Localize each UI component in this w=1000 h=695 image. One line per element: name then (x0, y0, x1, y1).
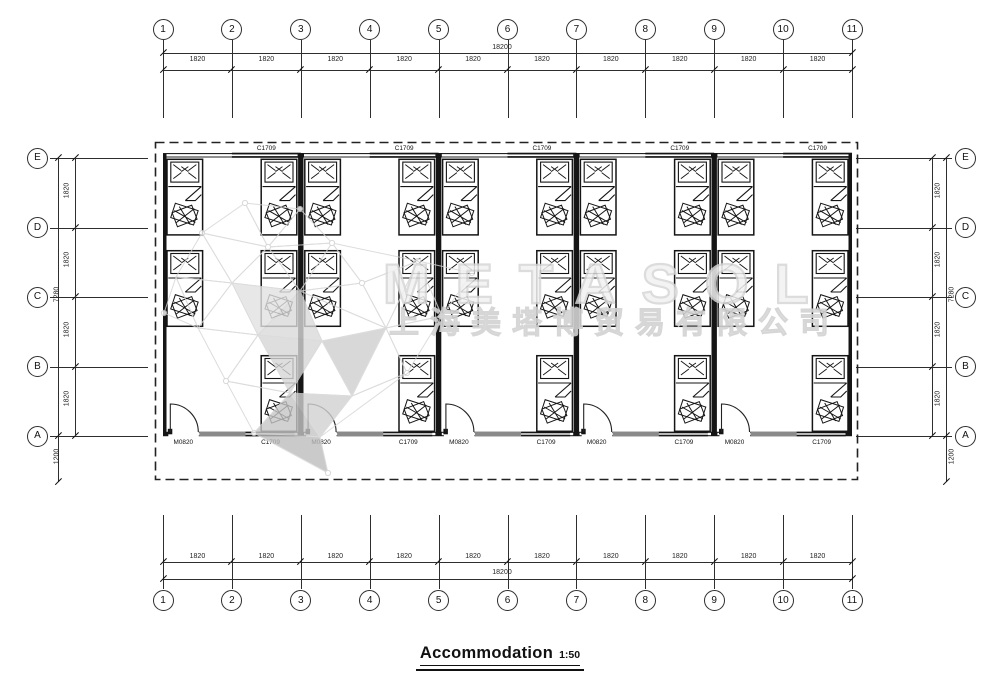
bed (399, 159, 435, 235)
bed (718, 251, 754, 327)
bottom-window-label: C1709 (812, 439, 831, 446)
partition-wall (298, 155, 303, 436)
bed (675, 356, 711, 432)
top-window-label: C1709 (395, 145, 414, 152)
top-window-label: C1709 (257, 145, 276, 152)
bed (261, 356, 297, 432)
bed (305, 159, 341, 235)
bed (399, 251, 435, 327)
bed (675, 251, 711, 327)
bottom-window-label: C1709 (674, 439, 693, 446)
bed (537, 356, 573, 432)
door-swing (584, 404, 612, 432)
partition-wall (574, 155, 579, 436)
partition-wall (712, 155, 717, 436)
drawing-scale: 1:50 (559, 649, 580, 661)
bed (812, 251, 848, 327)
door-swing (308, 404, 336, 432)
bottom-window-label: C1709 (261, 439, 280, 446)
door-label: M0820 (311, 439, 331, 446)
bottom-window-label: C1709 (399, 439, 418, 446)
door-label: M0820 (725, 439, 745, 446)
title-block: Accommodation1:50 (400, 644, 600, 671)
bed (261, 251, 297, 327)
bed (305, 251, 341, 327)
bed (399, 356, 435, 432)
bottom-window-label: C1709 (537, 439, 556, 446)
bed (812, 356, 848, 432)
bed (537, 251, 573, 327)
bed (718, 159, 754, 235)
door-swing (170, 404, 198, 432)
bed (167, 159, 203, 235)
top-window-label: C1709 (670, 145, 689, 152)
drawing-title: Accommodation (420, 644, 553, 662)
drawing-sheet: C1709M0820C1709C1709M0820C1709C1709M0820… (0, 0, 1000, 695)
partition-wall (436, 155, 441, 436)
door-label: M0820 (449, 439, 469, 446)
bed (443, 159, 479, 235)
bed (167, 251, 203, 327)
bed (580, 251, 616, 327)
door-swing (446, 404, 474, 432)
bed (675, 159, 711, 235)
top-window-label: C1709 (808, 145, 827, 152)
top-window-label: C1709 (533, 145, 552, 152)
door-label: M0820 (174, 439, 194, 446)
floor-plan: C1709M0820C1709C1709M0820C1709C1709M0820… (0, 0, 1000, 695)
bed (537, 159, 573, 235)
floor-plan-svg: C1709M0820C1709C1709M0820C1709C1709M0820… (0, 0, 1000, 695)
door-label: M0820 (587, 439, 607, 446)
bed (261, 159, 297, 235)
door-swing (722, 404, 750, 432)
bed (443, 251, 479, 327)
bed (812, 159, 848, 235)
bed (580, 159, 616, 235)
